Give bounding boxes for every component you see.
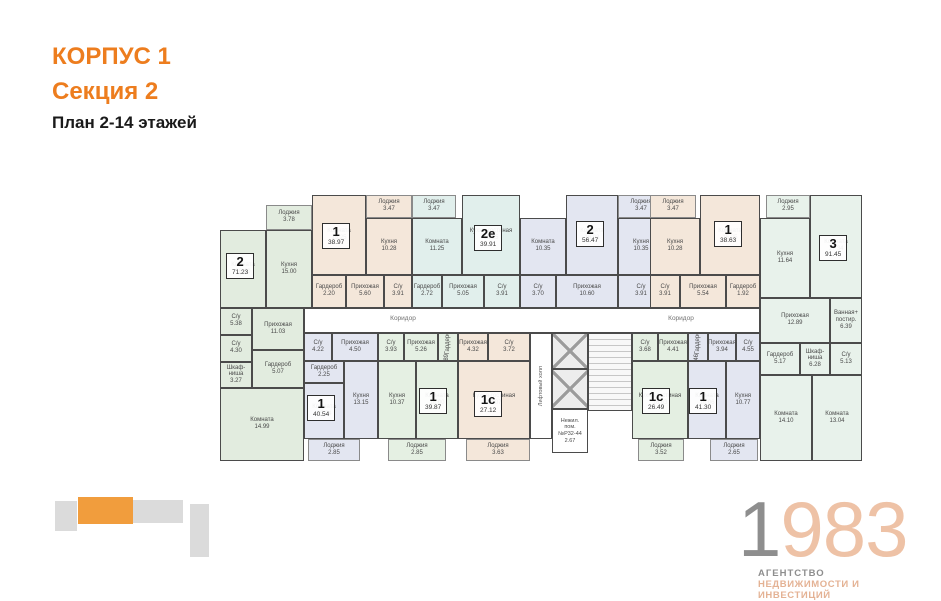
apartment-total-area: 71.23	[232, 269, 248, 276]
apartment-badge: 256.47	[576, 221, 604, 247]
room-name: Лоджия	[662, 199, 683, 206]
logo-year-accent: 983	[780, 485, 907, 573]
room-area: 3.47	[383, 206, 395, 213]
room-name: Кухня	[381, 239, 397, 246]
service-room-label: пом.	[564, 424, 575, 431]
room-area: 2.89	[444, 354, 451, 361]
room-area: 11.03	[271, 329, 286, 336]
room-area: Прихожая11.03	[252, 308, 304, 350]
service-room-label: Нежил.	[561, 418, 579, 425]
room-name: Гардероб	[311, 365, 337, 372]
room-area: 1.92	[737, 291, 749, 298]
room-name: Лоджия	[777, 199, 798, 206]
room-area: 2.25	[318, 372, 330, 379]
apartment-type: 1с	[648, 390, 664, 404]
apartment-total-area: 39.87	[425, 404, 441, 411]
room-name: С/у	[232, 314, 241, 321]
minimap-section[interactable]	[190, 504, 209, 557]
room-area: Гардероб2.46	[688, 333, 708, 361]
room-area: 2.85	[328, 450, 340, 457]
room-area: 5.13	[840, 359, 852, 366]
room-area: С/у3.93	[378, 333, 404, 361]
room-area: 10.77	[735, 400, 750, 407]
corridor-label: Коридор	[368, 315, 438, 322]
apartment-total-area: 27.12	[480, 407, 496, 414]
room-name: Кухня	[281, 262, 297, 269]
room-area: 13.15	[353, 400, 368, 407]
minimap-section[interactable]	[133, 500, 159, 523]
room-name: Шкаф-ниша	[801, 349, 829, 363]
room-area: Кухня10.37	[378, 361, 416, 439]
room-area: 12.89	[787, 320, 802, 327]
room-name: С/у	[314, 340, 323, 347]
room-name: С/у	[641, 340, 650, 347]
room-area: 5.05	[457, 291, 469, 298]
elevator-shaft	[552, 369, 588, 409]
room-area: 10.28	[381, 246, 396, 253]
agency-logo: 1983 АГЕНТСТВО НЕДВИЖИМОСТИ И ИНВЕСТИЦИЙ	[738, 498, 928, 601]
page-header: КОРПУС 1 Секция 2 План 2-14 этажей	[52, 40, 197, 136]
room-area: 3.93	[385, 347, 397, 354]
room-area: Комната13.04	[812, 375, 862, 461]
room-area: Комната14.10	[760, 375, 812, 461]
room-name: Лоджия	[323, 443, 344, 450]
room-name: Лоджия	[278, 210, 299, 217]
apartment-type: 2	[582, 223, 598, 237]
room-name: Прихожая	[781, 313, 809, 320]
apartment-badge: 2е39.91	[474, 225, 502, 251]
room-area: Гардероб5.17	[760, 343, 800, 375]
room-name: Лоджия	[487, 443, 508, 450]
minimap-section[interactable]	[55, 501, 77, 531]
room-area: 4.30	[230, 348, 242, 355]
room-name: Гардероб	[445, 333, 452, 354]
room-area: 14.10	[778, 418, 793, 425]
minimap-section-current[interactable]	[78, 497, 133, 524]
room-area: Шкаф-ниша6.28	[800, 343, 830, 375]
room-area: С/у3.68	[632, 333, 658, 361]
apartment-total-area: 56.47	[582, 237, 598, 244]
room-area: С/у5.38	[220, 308, 252, 335]
room-name: Кухня	[389, 393, 405, 400]
apartment-badge: 271.23	[226, 253, 254, 279]
apartment-badge: 138.97	[322, 223, 350, 249]
apartment-badge: 1с27.12	[474, 391, 502, 417]
logo-year-gray: 1	[738, 485, 780, 573]
room-area: Гардероб2.25	[304, 361, 344, 383]
apartment-badge: 1с26.49	[642, 388, 670, 414]
room-area: 3.52	[655, 450, 667, 457]
room-name: Лоджия	[650, 443, 671, 450]
room-name: С/у	[661, 284, 670, 291]
room-area: 5.38	[230, 321, 242, 328]
room-area: Прихожая4.41	[658, 333, 688, 361]
room-area: 15.00	[281, 269, 296, 276]
room-loggia: Лоджия2.85	[388, 439, 446, 461]
room-name: Шкаф-ниша	[221, 365, 251, 379]
apartment-total-area: 38.63	[720, 237, 736, 244]
room-area: 3.72	[503, 347, 515, 354]
room-area: Прихожая5.60	[346, 275, 384, 308]
room-area: Гардероб2.72	[412, 275, 442, 308]
room-area: 3.91	[659, 291, 671, 298]
room-name: С/у	[505, 340, 514, 347]
room-area: 11.25	[430, 246, 445, 253]
room-area: 2.65	[728, 450, 740, 457]
apartment-type: 1	[425, 390, 441, 404]
room-area: 10.35	[633, 246, 648, 253]
room-name: Прихожая	[341, 340, 369, 347]
apartment-type: 2	[232, 255, 248, 269]
room-area: Прихожая4.50	[332, 333, 378, 361]
room-area: 5.26	[415, 347, 427, 354]
room-area: 3.27	[230, 378, 242, 385]
room-name: Комната	[531, 239, 555, 246]
room-name: С/у	[394, 284, 403, 291]
apartment-total-area: 41.30	[695, 404, 711, 411]
plan-title: План 2-14 этажей	[52, 110, 197, 136]
room-area: С/у3.72	[488, 333, 530, 361]
room-area: 4.22	[312, 347, 324, 354]
room-name: Гардероб	[695, 333, 702, 354]
room-area: Гардероб1.92	[726, 275, 760, 308]
elevator-shaft	[552, 333, 588, 369]
room-area: Комната14.99	[220, 388, 304, 461]
room-name: Гардероб	[414, 284, 440, 291]
apartment-type: 3	[825, 237, 841, 251]
room-area: 10.28	[667, 246, 682, 253]
room-area: 3.91	[496, 291, 508, 298]
room-name: Гардероб	[316, 284, 342, 291]
room-area: Ванная+ постир.6.39	[830, 298, 862, 343]
apartment-total-area: 26.49	[648, 404, 664, 411]
room-name: Кухня	[667, 239, 683, 246]
apartment-type: 1	[313, 397, 329, 411]
logo-subtitle-line: НЕДВИЖИМОСТИ И ИНВЕСТИЦИЙ	[758, 579, 928, 601]
room-name: Гардероб	[767, 352, 793, 359]
room-area: Шкаф-ниша3.27	[220, 362, 252, 388]
room-area: Гардероб2.20	[312, 275, 346, 308]
room-name: Гардероб	[730, 284, 756, 291]
apartment-badge: 141.30	[689, 388, 717, 414]
room-name: С/у	[534, 284, 543, 291]
room-loggia: Лоджия2.65	[710, 439, 758, 461]
room-area: 6.28	[809, 362, 821, 369]
apartment-total-area: 39.91	[480, 241, 496, 248]
apartment-badge: 391.45	[819, 235, 847, 261]
room-area: С/у4.55	[736, 333, 760, 361]
room-area: 13.04	[829, 418, 844, 425]
room-loggia: Лоджия3.47	[366, 195, 412, 218]
room-area: С/у3.91	[650, 275, 680, 308]
room-area: С/у5.13	[830, 343, 862, 375]
room-name: Комната	[425, 239, 449, 246]
service-room-label: №Р32-44	[558, 431, 582, 438]
room-area: Кухня10.77	[726, 361, 760, 439]
room-area: Комната11.25	[412, 218, 462, 275]
room-area: 2.85	[411, 450, 423, 457]
room-name: Прихожая	[407, 340, 435, 347]
room-area: Прихожая5.54	[680, 275, 726, 308]
room-loggia: Лоджия3.47	[412, 195, 456, 218]
room-area: 2.20	[323, 291, 335, 298]
room-area: 3.91	[635, 291, 647, 298]
room-area: 5.07	[272, 369, 284, 376]
room-area: 4.55	[742, 347, 754, 354]
room-name: С/у	[842, 352, 851, 359]
room-name: Прихожая	[264, 322, 292, 329]
room-area: 11.64	[778, 258, 793, 265]
room-area: С/у3.91	[384, 275, 412, 308]
room-name: Прихожая	[659, 340, 687, 347]
room-area: 14.99	[254, 424, 269, 431]
room-area: Кухня15.00	[266, 230, 312, 308]
room-name: Ванная+ постир.	[831, 310, 861, 324]
room-name: С/у	[744, 340, 753, 347]
elevator-hall-label: Лифтовый холл	[538, 366, 544, 406]
room-name: Лоджия	[423, 199, 444, 206]
room-area: Кухня10.28	[650, 218, 700, 275]
room-area: 3.63	[492, 450, 504, 457]
room-area: Прихожая4.32	[458, 333, 488, 361]
room-name: Прихожая	[708, 340, 736, 347]
room-name: Лоджия	[406, 443, 427, 450]
room-name: Кухня	[735, 393, 751, 400]
room-name: Прихожая	[449, 284, 477, 291]
room-area: Кухня11.64	[760, 218, 810, 298]
room-name: Кухня	[633, 239, 649, 246]
room-area: Прихожая5.26	[404, 333, 438, 361]
room-area: Гардероб2.89	[438, 333, 458, 361]
apartment-type: 1	[720, 223, 736, 237]
room-area: 4.32	[467, 347, 479, 354]
apartment-type: 1	[695, 390, 711, 404]
room-area: 10.37	[389, 400, 404, 407]
staircase	[588, 333, 632, 411]
room-area: 4.50	[349, 347, 361, 354]
room-name: С/у	[232, 341, 241, 348]
room-name: Лоджия	[378, 199, 399, 206]
corridor-label: Коридор	[646, 315, 716, 322]
room-area: Кухня10.28	[366, 218, 412, 275]
room-name: Прихожая	[351, 284, 379, 291]
room-area: 3.94	[716, 347, 728, 354]
apartment-total-area: 38.97	[328, 239, 344, 246]
room-loggia: Лоджия3.63	[466, 439, 530, 461]
room-area: Гардероб5.07	[252, 350, 304, 388]
room-area: 3.68	[639, 347, 651, 354]
room-loggia: Лоджия2.85	[308, 439, 360, 461]
room-area: 3.91	[392, 291, 404, 298]
room-name: С/у	[387, 340, 396, 347]
room-name: С/у	[498, 284, 507, 291]
room-loggia: Лоджия3.47	[650, 195, 696, 218]
room-name: Кухня	[353, 393, 369, 400]
room-name: Кухня	[777, 251, 793, 258]
room-area: 4.41	[667, 347, 679, 354]
apartment-badge: 138.63	[714, 221, 742, 247]
room-name: Комната	[825, 411, 849, 418]
apartment-badge: 140.54	[307, 395, 335, 421]
apartment-type: 1	[328, 225, 344, 239]
room-name: Гардероб	[265, 362, 291, 369]
room-area: Комната10.35	[520, 218, 566, 275]
room-area: С/у3.91	[484, 275, 520, 308]
room-loggia: Лоджия3.52	[638, 439, 684, 461]
room-name: Лоджия	[723, 443, 744, 450]
room-area: 6.39	[840, 324, 852, 331]
room-area: 3.78	[283, 217, 295, 224]
apartment-type: 2е	[480, 227, 496, 241]
room-area: 3.47	[428, 206, 440, 213]
room-area: 5.60	[359, 291, 371, 298]
room-name: Комната	[774, 411, 798, 418]
room-area: 3.70	[532, 291, 544, 298]
apartment-total-area: 91.45	[825, 251, 841, 258]
logo-year: 1983	[738, 498, 928, 562]
minimap-section[interactable]	[159, 500, 183, 523]
service-room-label: 2.67	[565, 438, 576, 445]
room-name: Комната	[250, 417, 274, 424]
room-area: 2.95	[782, 206, 794, 213]
room-loggia: Лоджия3.78	[266, 205, 312, 230]
apartment-type: 1с	[480, 393, 496, 407]
elevator-hall: Лифтовый холл	[530, 333, 552, 439]
service-room: Нежил.пом.№Р32-442.67	[552, 409, 588, 453]
room-area: Прихожая12.89	[760, 298, 830, 343]
room-area: 5.54	[697, 291, 709, 298]
room-name: Прихожая	[573, 284, 601, 291]
room-area: 2.46	[694, 354, 701, 361]
room-name: С/у	[637, 284, 646, 291]
apartment-total-area: 40.54	[313, 411, 329, 418]
room-area: Прихожая5.05	[442, 275, 484, 308]
room-area: 3.47	[667, 206, 679, 213]
room-name: Прихожая	[459, 340, 487, 347]
room-area: Прихожая10.60	[556, 275, 618, 308]
room-loggia: Лоджия2.95	[766, 195, 810, 218]
room-area: 5.17	[774, 359, 786, 366]
apartment-badge: 139.87	[419, 388, 447, 414]
room-area: С/у4.22	[304, 333, 332, 361]
room-area: С/у3.70	[520, 275, 556, 308]
room-name: Лоджия	[630, 199, 651, 206]
section-title: Секция 2	[52, 75, 197, 110]
room-area: Прихожая3.94	[708, 333, 736, 361]
corpus-title: КОРПУС 1	[52, 40, 197, 75]
room-area: 3.47	[635, 206, 647, 213]
room-area: 10.35	[535, 246, 550, 253]
room-area: Кухня13.15	[344, 361, 378, 439]
room-area: 10.60	[579, 291, 594, 298]
room-area: 2.72	[421, 291, 433, 298]
room-area: С/у4.30	[220, 335, 252, 362]
floor-plan: Лоджия3.78Комната16.80Кухня15.00Прихожая…	[218, 183, 863, 463]
room-name: Прихожая	[689, 284, 717, 291]
